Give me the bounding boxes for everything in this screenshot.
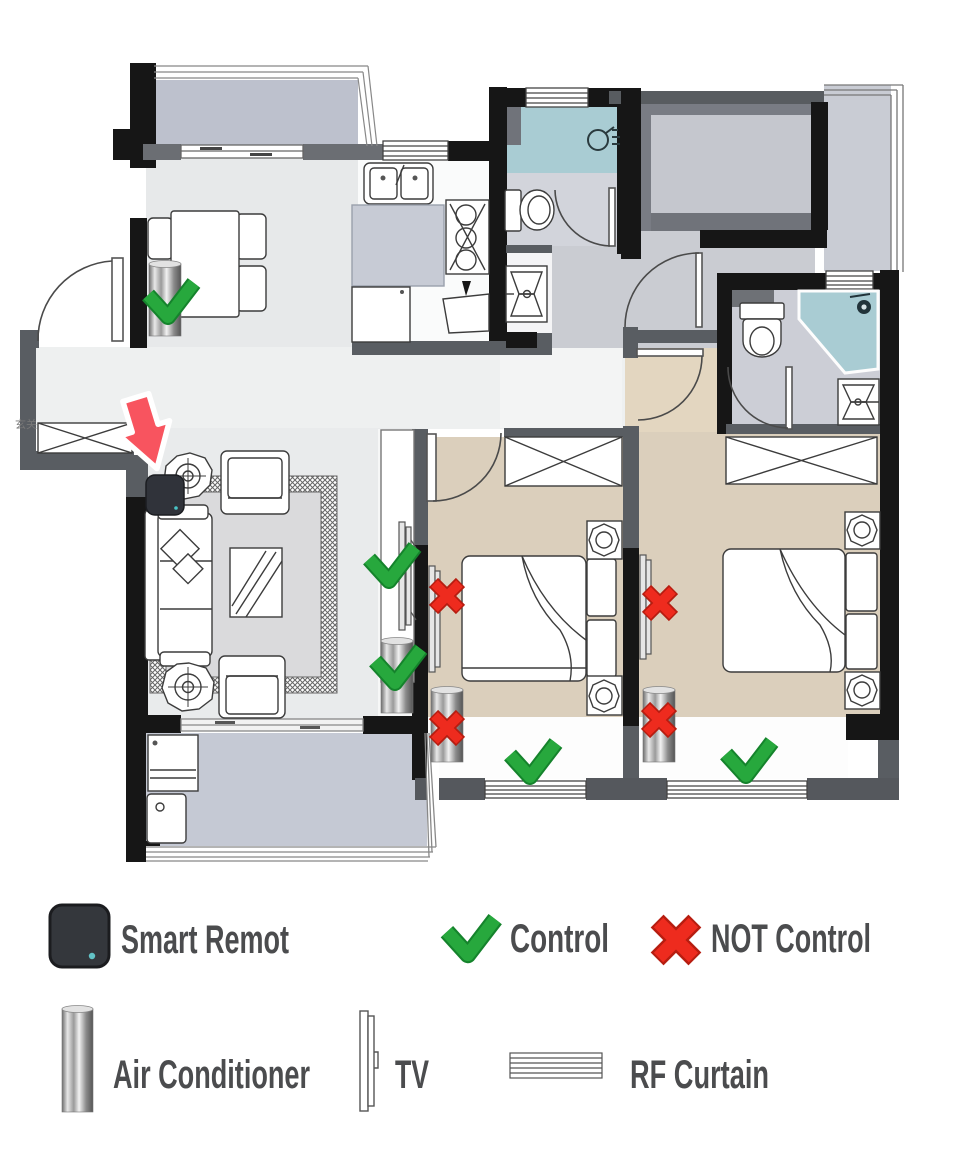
svg-text:Smart Remot: Smart Remot bbox=[121, 918, 289, 962]
svg-text:玄关: 玄关 bbox=[15, 417, 37, 431]
svg-text:Air Conditioner: Air Conditioner bbox=[113, 1053, 310, 1097]
svg-text:TV: TV bbox=[395, 1053, 429, 1097]
svg-text:RF Curtain: RF Curtain bbox=[630, 1053, 769, 1097]
svg-text:NOT Control: NOT Control bbox=[711, 917, 871, 961]
svg-text:Control: Control bbox=[510, 917, 609, 961]
